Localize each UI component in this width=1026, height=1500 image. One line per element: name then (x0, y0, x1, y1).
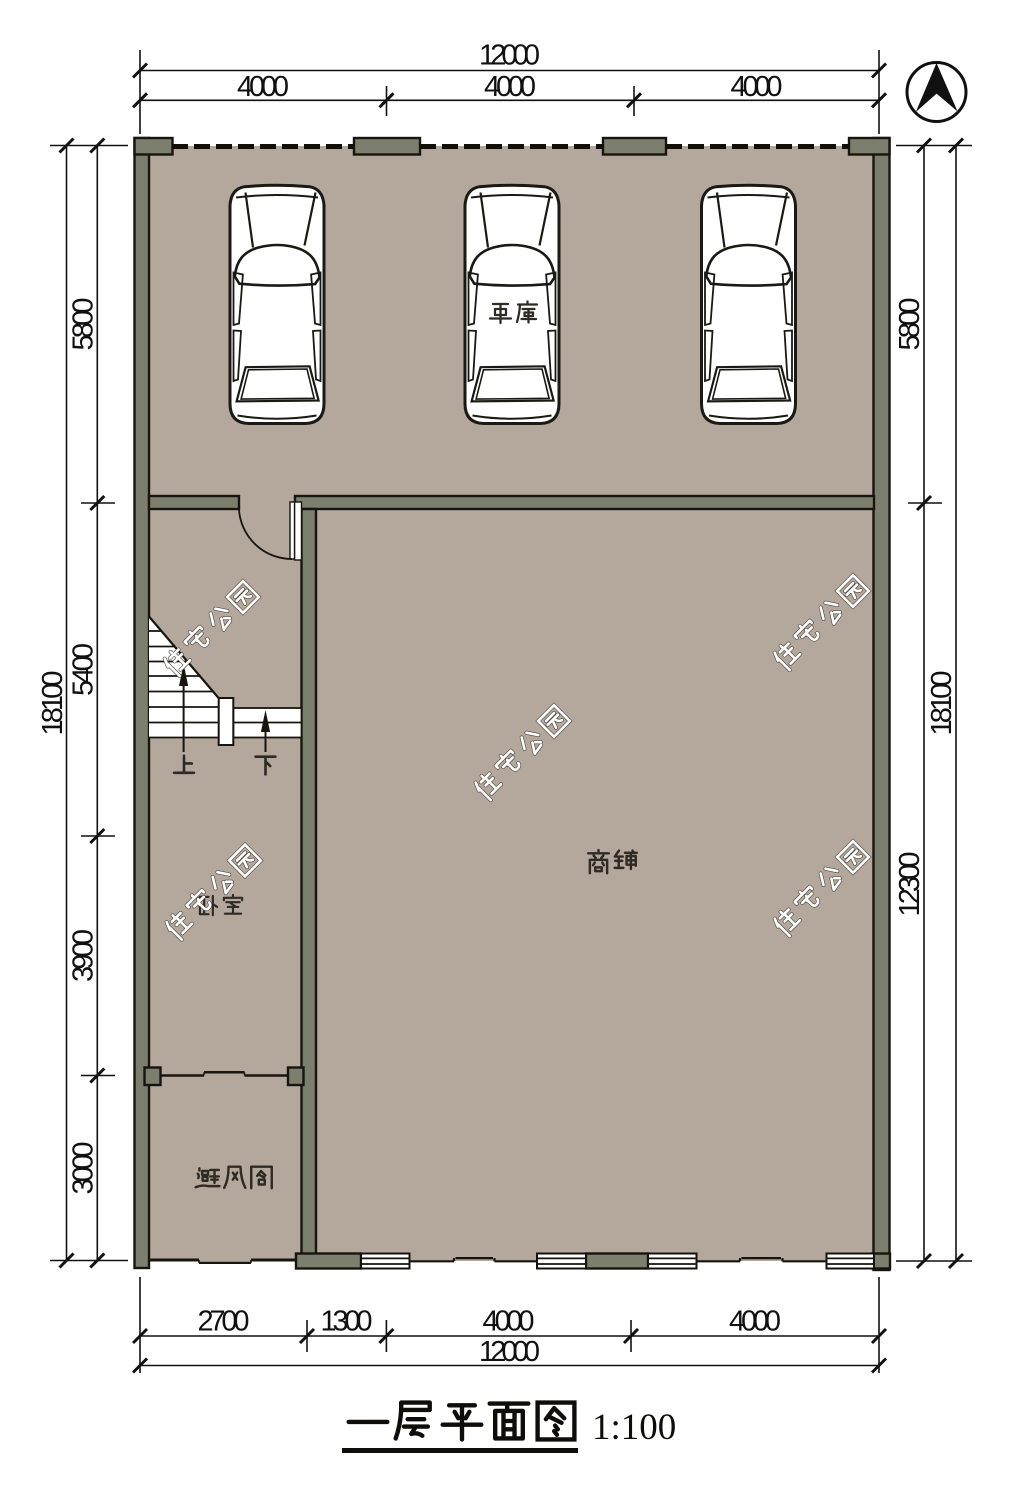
svg-text:4000: 4000 (237, 71, 289, 103)
svg-text:18100: 18100 (926, 671, 958, 736)
svg-text:5400: 5400 (67, 643, 99, 696)
svg-text:12000: 12000 (479, 1336, 540, 1368)
svg-text:18100: 18100 (37, 671, 69, 736)
svg-text:3900: 3900 (67, 929, 99, 982)
svg-text:5800: 5800 (67, 298, 99, 351)
svg-text:12300: 12300 (894, 852, 926, 917)
svg-text:3000: 3000 (67, 1142, 99, 1195)
svg-text:4000: 4000 (729, 1306, 781, 1338)
svg-text:1300: 1300 (321, 1306, 373, 1338)
svg-text:5800: 5800 (894, 298, 926, 351)
svg-text:1:100: 1:100 (592, 1407, 676, 1448)
svg-text:4000: 4000 (731, 71, 783, 103)
svg-text:12000: 12000 (479, 40, 540, 72)
svg-text:4000: 4000 (484, 71, 536, 103)
svg-text:4000: 4000 (483, 1306, 535, 1338)
svg-text:2700: 2700 (198, 1306, 250, 1338)
